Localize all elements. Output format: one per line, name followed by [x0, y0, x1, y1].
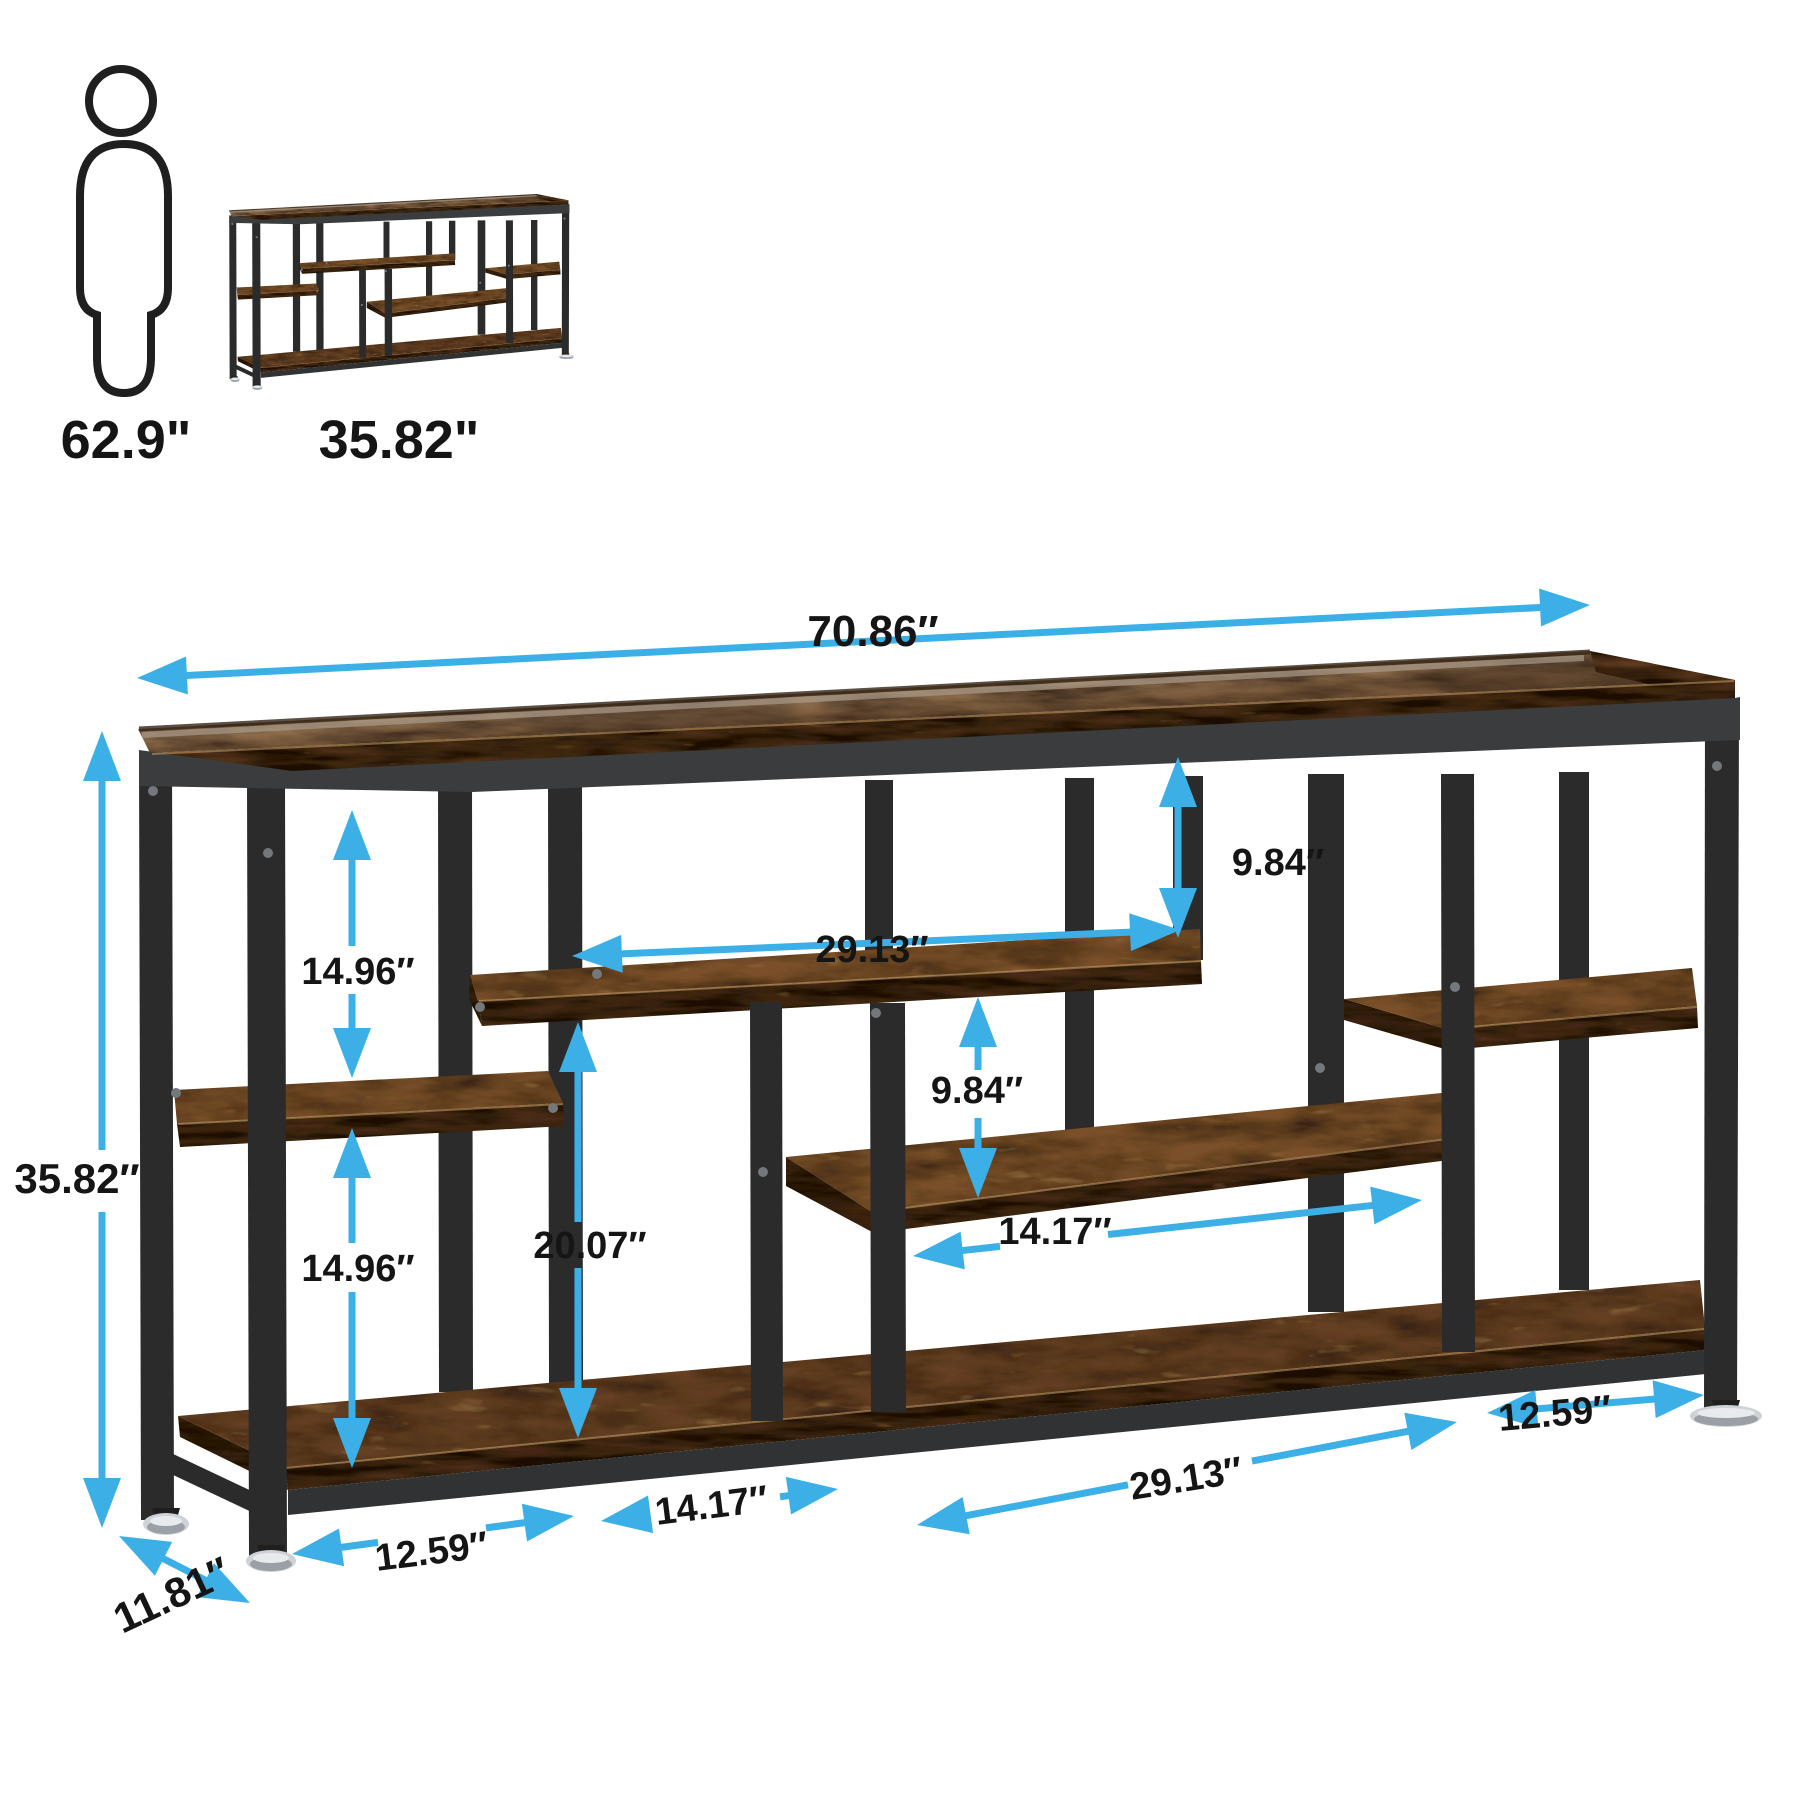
svg-text:70.86″: 70.86″: [807, 607, 938, 656]
svg-text:35.82": 35.82": [319, 410, 480, 470]
svg-text:14.17″: 14.17″: [998, 1211, 1111, 1253]
svg-text:9.84″: 9.84″: [931, 1070, 1023, 1112]
svg-text:62.9": 62.9": [61, 410, 192, 470]
svg-text:20.07″: 20.07″: [533, 1225, 646, 1267]
svg-text:14.96″: 14.96″: [301, 951, 414, 993]
svg-text:9.84″: 9.84″: [1232, 842, 1324, 884]
svg-text:29.13″: 29.13″: [815, 929, 928, 971]
svg-text:35.82″: 35.82″: [14, 1155, 139, 1202]
svg-text:14.96″: 14.96″: [301, 1248, 414, 1290]
